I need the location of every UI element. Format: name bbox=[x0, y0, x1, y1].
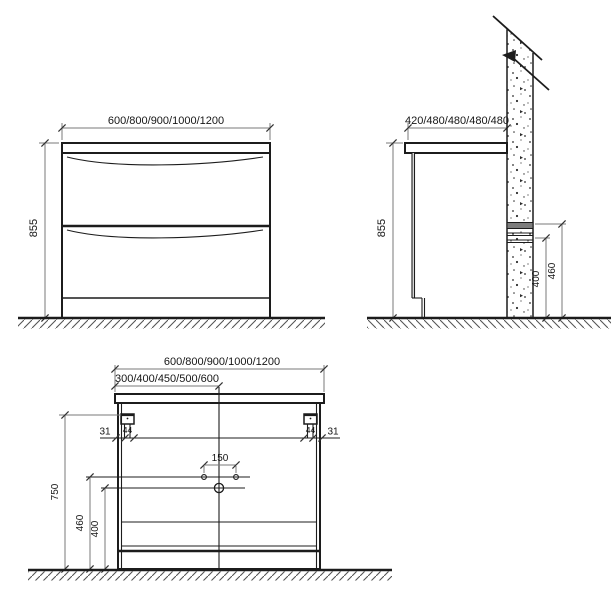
drawer-handle-curve-top bbox=[67, 157, 263, 165]
front-height-dimension-label: 855 bbox=[28, 219, 40, 237]
technical-drawing: 600/800/900/1000/1200 855 420/480/480/48… bbox=[0, 0, 615, 597]
faucet-spacing-label: 150 bbox=[212, 453, 229, 464]
drawing-canvas: 600/800/900/1000/1200 855 420/480/480/48… bbox=[0, 0, 615, 597]
side-view: 420/480/480/480/480 855 bbox=[367, 16, 611, 329]
hanger-width-left-label: 44 bbox=[123, 425, 133, 435]
hanger-width-right-label: 44 bbox=[306, 425, 316, 435]
front-width-dimension-label: 600/800/900/1000/1200 bbox=[108, 115, 224, 127]
back-top-height-label: 750 bbox=[50, 483, 61, 500]
cabinet-outline bbox=[62, 143, 270, 318]
drawer-handle-curve-bottom bbox=[67, 230, 263, 238]
side-height-dimension-label: 855 bbox=[376, 219, 388, 237]
floor-hatch bbox=[28, 572, 392, 581]
side-depth-dimension-label: 420/480/480/480/480 bbox=[405, 115, 509, 127]
wall-rail-upper bbox=[507, 223, 533, 229]
countertop-section bbox=[405, 143, 507, 153]
floor-hatch bbox=[18, 320, 325, 329]
floor-hatch bbox=[367, 320, 611, 329]
hanger-offset-right-label: 31 bbox=[327, 427, 339, 438]
hanger-offset-left-label: 31 bbox=[99, 427, 111, 438]
back-view: 600/800/900/1000/1200 300/400/450/500/60… bbox=[28, 356, 392, 581]
back-upper-hole-label: 460 bbox=[75, 514, 86, 531]
side-lower-fixing-label: 400 bbox=[531, 270, 542, 287]
back-lower-hole-label: 400 bbox=[90, 520, 101, 537]
side-upper-fixing-label: 460 bbox=[547, 262, 558, 279]
back-width-dimension-label: 600/800/900/1000/1200 bbox=[164, 356, 280, 368]
back-half-width-dimension-label: 300/400/450/500/600 bbox=[115, 373, 219, 385]
front-view: 600/800/900/1000/1200 855 bbox=[18, 115, 325, 329]
